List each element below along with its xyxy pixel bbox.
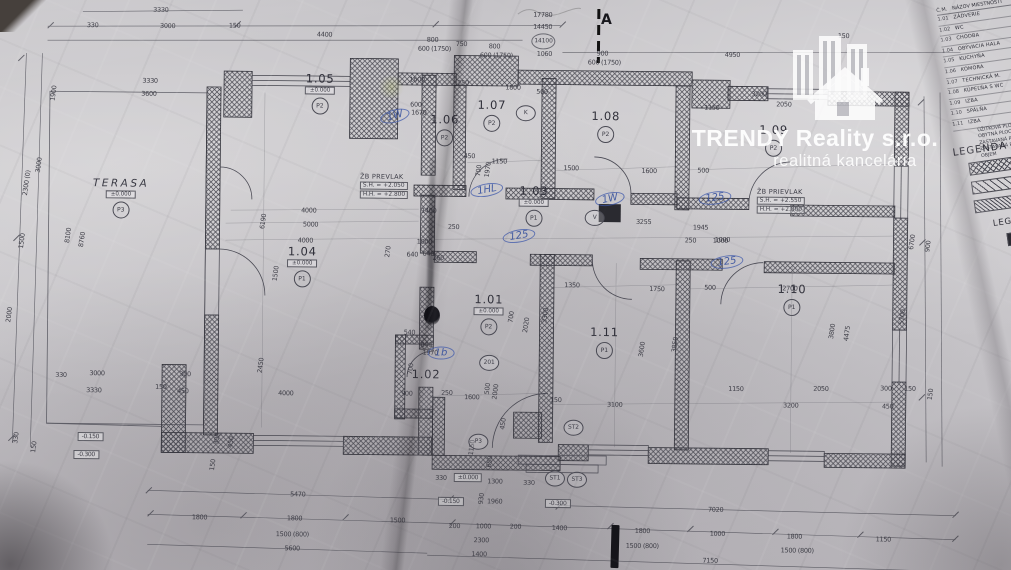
photo-corner-background: [0, 0, 46, 32]
pen-annotation: 125: [502, 227, 537, 246]
pen-annotations: 1W1HL1W1251251251b: [0, 0, 1011, 570]
ink-blob: [424, 306, 440, 325]
pen-annotation: 1W: [379, 106, 412, 126]
floor-plan-photo: 333033030001504400800600 (1750)750800600…: [0, 0, 1011, 570]
pen-annotation: 125: [710, 253, 745, 270]
pen-annotation: 125: [698, 189, 733, 206]
pen-annotation: 1b: [428, 347, 455, 360]
pen-annotation: 1W: [594, 189, 626, 208]
pen-annotation: 1HL: [469, 181, 504, 200]
paper-stain: [376, 76, 406, 98]
section-mark-bottom: [610, 525, 619, 568]
